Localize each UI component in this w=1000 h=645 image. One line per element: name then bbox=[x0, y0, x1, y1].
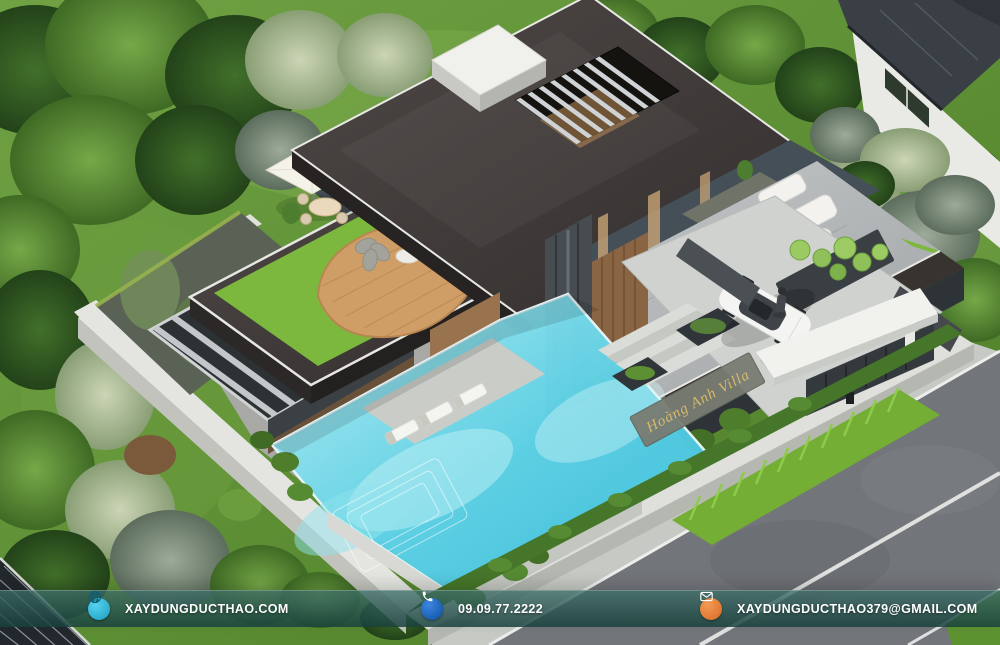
globe-icon bbox=[88, 598, 110, 620]
footer-contact-bar: XAYDUNGDUCTHAO.COM 09.09.77.2222 XAYDUNG… bbox=[0, 590, 1000, 627]
potted-plant bbox=[282, 202, 300, 224]
villa-rendering-image: Hoàng Anh Villa XAYDUNGDUCTHAO.COM bbox=[0, 0, 1000, 645]
email-icon bbox=[700, 598, 722, 620]
email-label: XAYDUNGDUCTHAO379@GMAIL.COM bbox=[737, 602, 978, 616]
phone-label: 09.09.77.2222 bbox=[458, 602, 543, 616]
email-contact[interactable]: XAYDUNGDUCTHAO379@GMAIL.COM bbox=[700, 590, 978, 627]
website-contact[interactable]: XAYDUNGDUCTHAO.COM bbox=[88, 590, 289, 627]
phone-contact[interactable]: 09.09.77.2222 bbox=[421, 590, 543, 627]
website-label: XAYDUNGDUCTHAO.COM bbox=[125, 602, 289, 616]
phone-icon bbox=[421, 598, 443, 620]
villa-3d-scene: Hoàng Anh Villa bbox=[0, 0, 1000, 645]
